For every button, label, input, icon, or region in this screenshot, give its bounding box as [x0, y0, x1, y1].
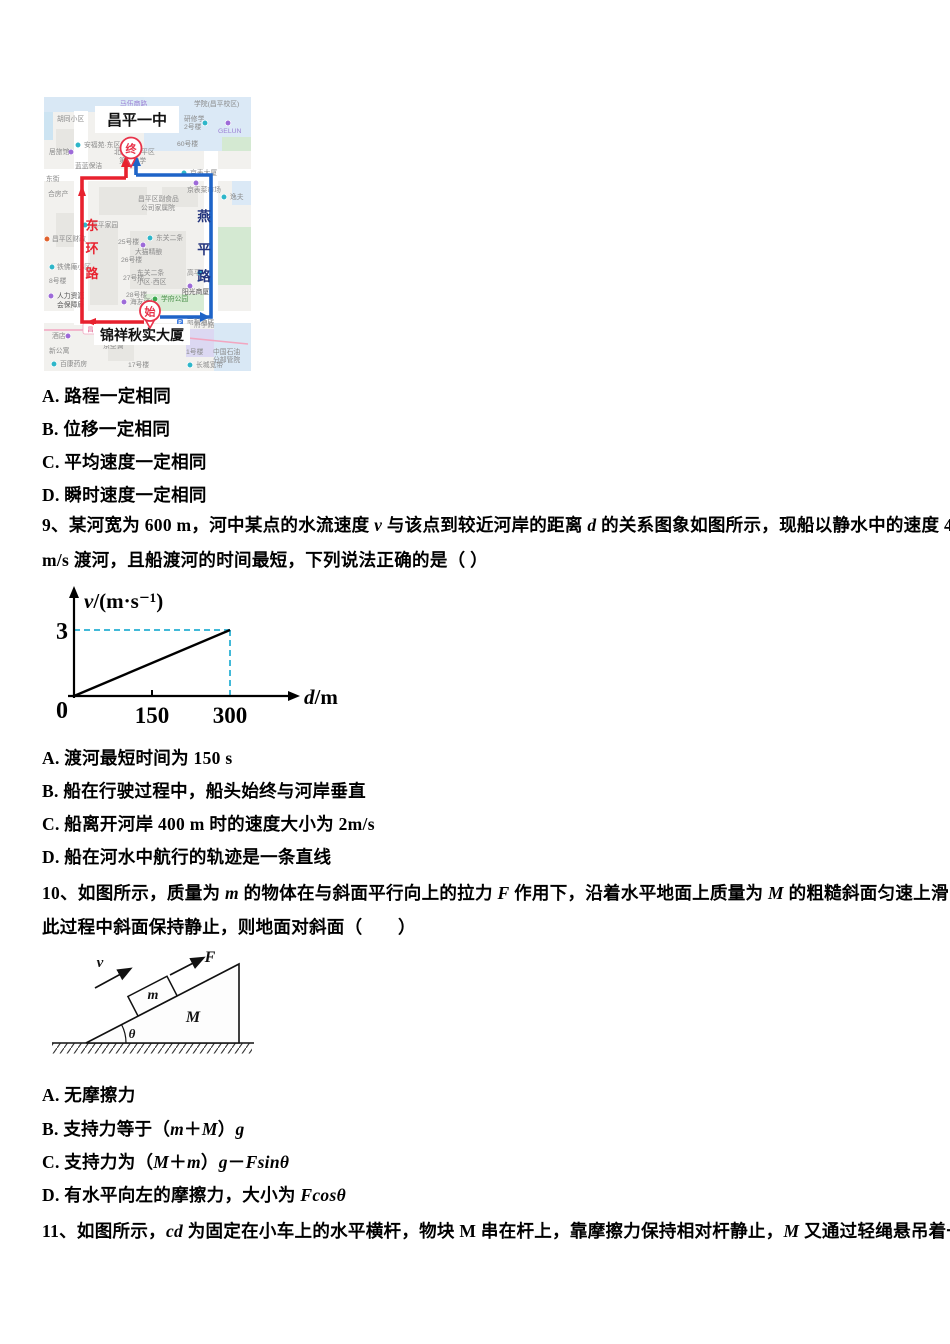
school-label-box: 昌平一中: [95, 106, 179, 133]
q10-option-d: D. 有水平向左的摩擦力，大小为 Fcosθ: [42, 1183, 346, 1207]
purple-poi-icon: [225, 120, 231, 126]
map-poi-label: 8号楼: [49, 276, 67, 285]
q8-option-c: C. 平均速度一定相同: [42, 450, 207, 474]
orange-poi-icon: [44, 236, 50, 242]
map-poi-label: 26号楼: [121, 255, 142, 264]
q10-option-a: A. 无摩擦力: [42, 1083, 136, 1107]
graph-data-line: [74, 630, 230, 696]
label-m: m: [148, 988, 159, 1003]
q8-option-a: A. 路程一定相同: [42, 384, 171, 408]
q10-stem-line-2: 此过程中斜面保持静止，则地面对斜面（ ）: [42, 915, 416, 939]
map-poi-label: 学府公园: [161, 294, 188, 303]
q9-option-a: A. 渡河最短时间为 150 s: [42, 746, 233, 770]
street-name-yanpinglu: 燕 平 路: [197, 208, 211, 284]
map-poi-label: 25号楼: [118, 237, 139, 246]
purple-poi-icon: [187, 283, 193, 289]
svg-text:终: 终: [126, 142, 138, 156]
graph-ytick-3: 3: [56, 619, 68, 645]
street-name-donghuanlu: 东 环 路: [85, 218, 99, 281]
map-poi-label: 27号楼: [123, 273, 144, 282]
building-label-box: 锦祥秋实大厦: [94, 324, 190, 345]
teal-poi-icon: [49, 264, 55, 270]
q9-option-d: D. 船在河水中航行的轨迹是一条直线: [42, 845, 331, 869]
svg-text:东: 东: [85, 218, 98, 233]
map-poi-label: 胡同小区: [57, 114, 84, 123]
map-poi-label: 60号楼: [177, 139, 198, 148]
teal-poi-icon: [75, 142, 81, 148]
teal-poi-icon: [51, 361, 57, 367]
q11-stem-line-1: 11、如图所示，cd 为固定在小车上的水平横杆，物块 M 串在杆上，靠摩擦力保持…: [42, 1219, 950, 1243]
graph-origin-0: 0: [56, 698, 68, 724]
purple-poi-icon: [140, 242, 146, 248]
label-M: M: [185, 1009, 201, 1026]
map-poi-label: 酒店: [52, 331, 66, 340]
label-v: v: [97, 955, 104, 971]
q8-option-b: B. 位移一定相同: [42, 417, 170, 441]
map-poi-label: 京表菜市场: [187, 185, 221, 194]
incline-figure: v F m M θ: [50, 948, 262, 1080]
svg-text:平: 平: [197, 242, 211, 257]
map-poi-label: 蓝蓝保洁: [75, 161, 102, 170]
map-poi-label: 研修学: [184, 114, 205, 123]
svg-text:环: 环: [85, 241, 98, 256]
map-poi-label: 1号楼: [186, 347, 204, 356]
q10-option-b: B. 支持力等于（m＋M）g: [42, 1117, 245, 1141]
teal-poi-icon: [221, 194, 227, 200]
purple-poi-icon: [193, 180, 199, 186]
map-poi-label: 中国石油: [213, 347, 240, 356]
q10-stem-line-1: 10、如图所示，质量为 m 的物体在与斜面平行向上的拉力 F 作用下，沿着水平地…: [42, 881, 950, 905]
vd-graph: 3 0 150 300 v/(m·s⁻¹) d/m: [44, 582, 364, 740]
map-poi-label: 28号楼: [126, 290, 147, 299]
map-poi-label: 合房产: [48, 189, 69, 198]
map-poi-label: 17号楼: [128, 360, 149, 369]
q9-stem-line-1: 9、某河宽为 600 m，河中某点的水流速度 v 与该点到较近河岸的距离 d 的…: [42, 513, 950, 537]
map-poi-label: 昌平区副食品: [138, 194, 179, 203]
purple-poi-icon: [65, 333, 71, 339]
map-poi-label: 2号楼: [184, 122, 202, 131]
map-poi-label: 大猫精酿: [135, 247, 162, 256]
graph-ylabel: v/(m·s⁻¹): [84, 589, 163, 613]
label-F: F: [204, 949, 216, 966]
graph-xtick-300: 300: [213, 703, 248, 728]
ground-hatching: [52, 1044, 252, 1054]
map-poi-label: 学院(昌平校区): [194, 99, 239, 108]
map-poi-label: 居旅馆: [49, 147, 70, 156]
teal-poi-icon: [187, 362, 193, 368]
graph-xtick-150: 150: [135, 703, 170, 728]
q8-option-d: D. 瞬时速度一定相同: [42, 483, 207, 507]
q9-stem-line-2: m/s 渡河，且船渡河的时间最短，下列说法正确的是（ ）: [42, 548, 488, 572]
map-poi-label: 东关二条: [156, 233, 183, 242]
svg-text:始: 始: [145, 305, 156, 319]
map-poi-label: 公司家属院: [141, 203, 175, 212]
purple-poi-icon: [48, 293, 54, 299]
label-theta: θ: [129, 1026, 136, 1041]
svg-text:燕: 燕: [197, 208, 211, 224]
map-poi-label: 新公寓: [49, 346, 70, 355]
map-poi-label: 安福苑·东区: [84, 140, 120, 149]
svg-text:锦祥秋实大厦: 锦祥秋实大厦: [100, 327, 185, 343]
map-poi-label: 百康药房: [60, 359, 87, 368]
exam-page: 马伍商路学院(昌平校区)胡同小区研修学2号楼GELUN安福苑·东区居旅馆60号楼…: [0, 0, 950, 1344]
svg-text:路: 路: [85, 266, 99, 281]
map-poi-label: 逸夫: [230, 192, 244, 201]
force-arrow-F: [170, 958, 203, 975]
q9-option-c: C. 船离开河岸 400 m 时的速度大小为 2m/s: [42, 812, 375, 836]
svg-text:路: 路: [197, 268, 211, 284]
map-figure: 马伍商路学院(昌平校区)胡同小区研修学2号楼GELUN安福苑·东区居旅馆60号楼…: [44, 97, 251, 371]
q9-option-b: B. 船在行驶过程中，船头始终与河岸垂直: [42, 779, 366, 803]
map-poi-label: GELUN: [218, 128, 242, 135]
velocity-arrow-v: [95, 969, 130, 988]
map-poi-label: 阳光商厦: [182, 287, 209, 296]
map-poi-label: 长城宽带: [196, 360, 223, 369]
q10-option-c: C. 支持力为（M＋m）g－Fsinθ: [42, 1150, 289, 1174]
svg-text:昌平一中: 昌平一中: [107, 111, 167, 129]
graph-xlabel: d/m: [304, 685, 338, 709]
teal-poi-icon: [147, 235, 153, 241]
purple-poi-icon: [121, 299, 127, 305]
map-poi-label: 东街: [46, 174, 60, 183]
